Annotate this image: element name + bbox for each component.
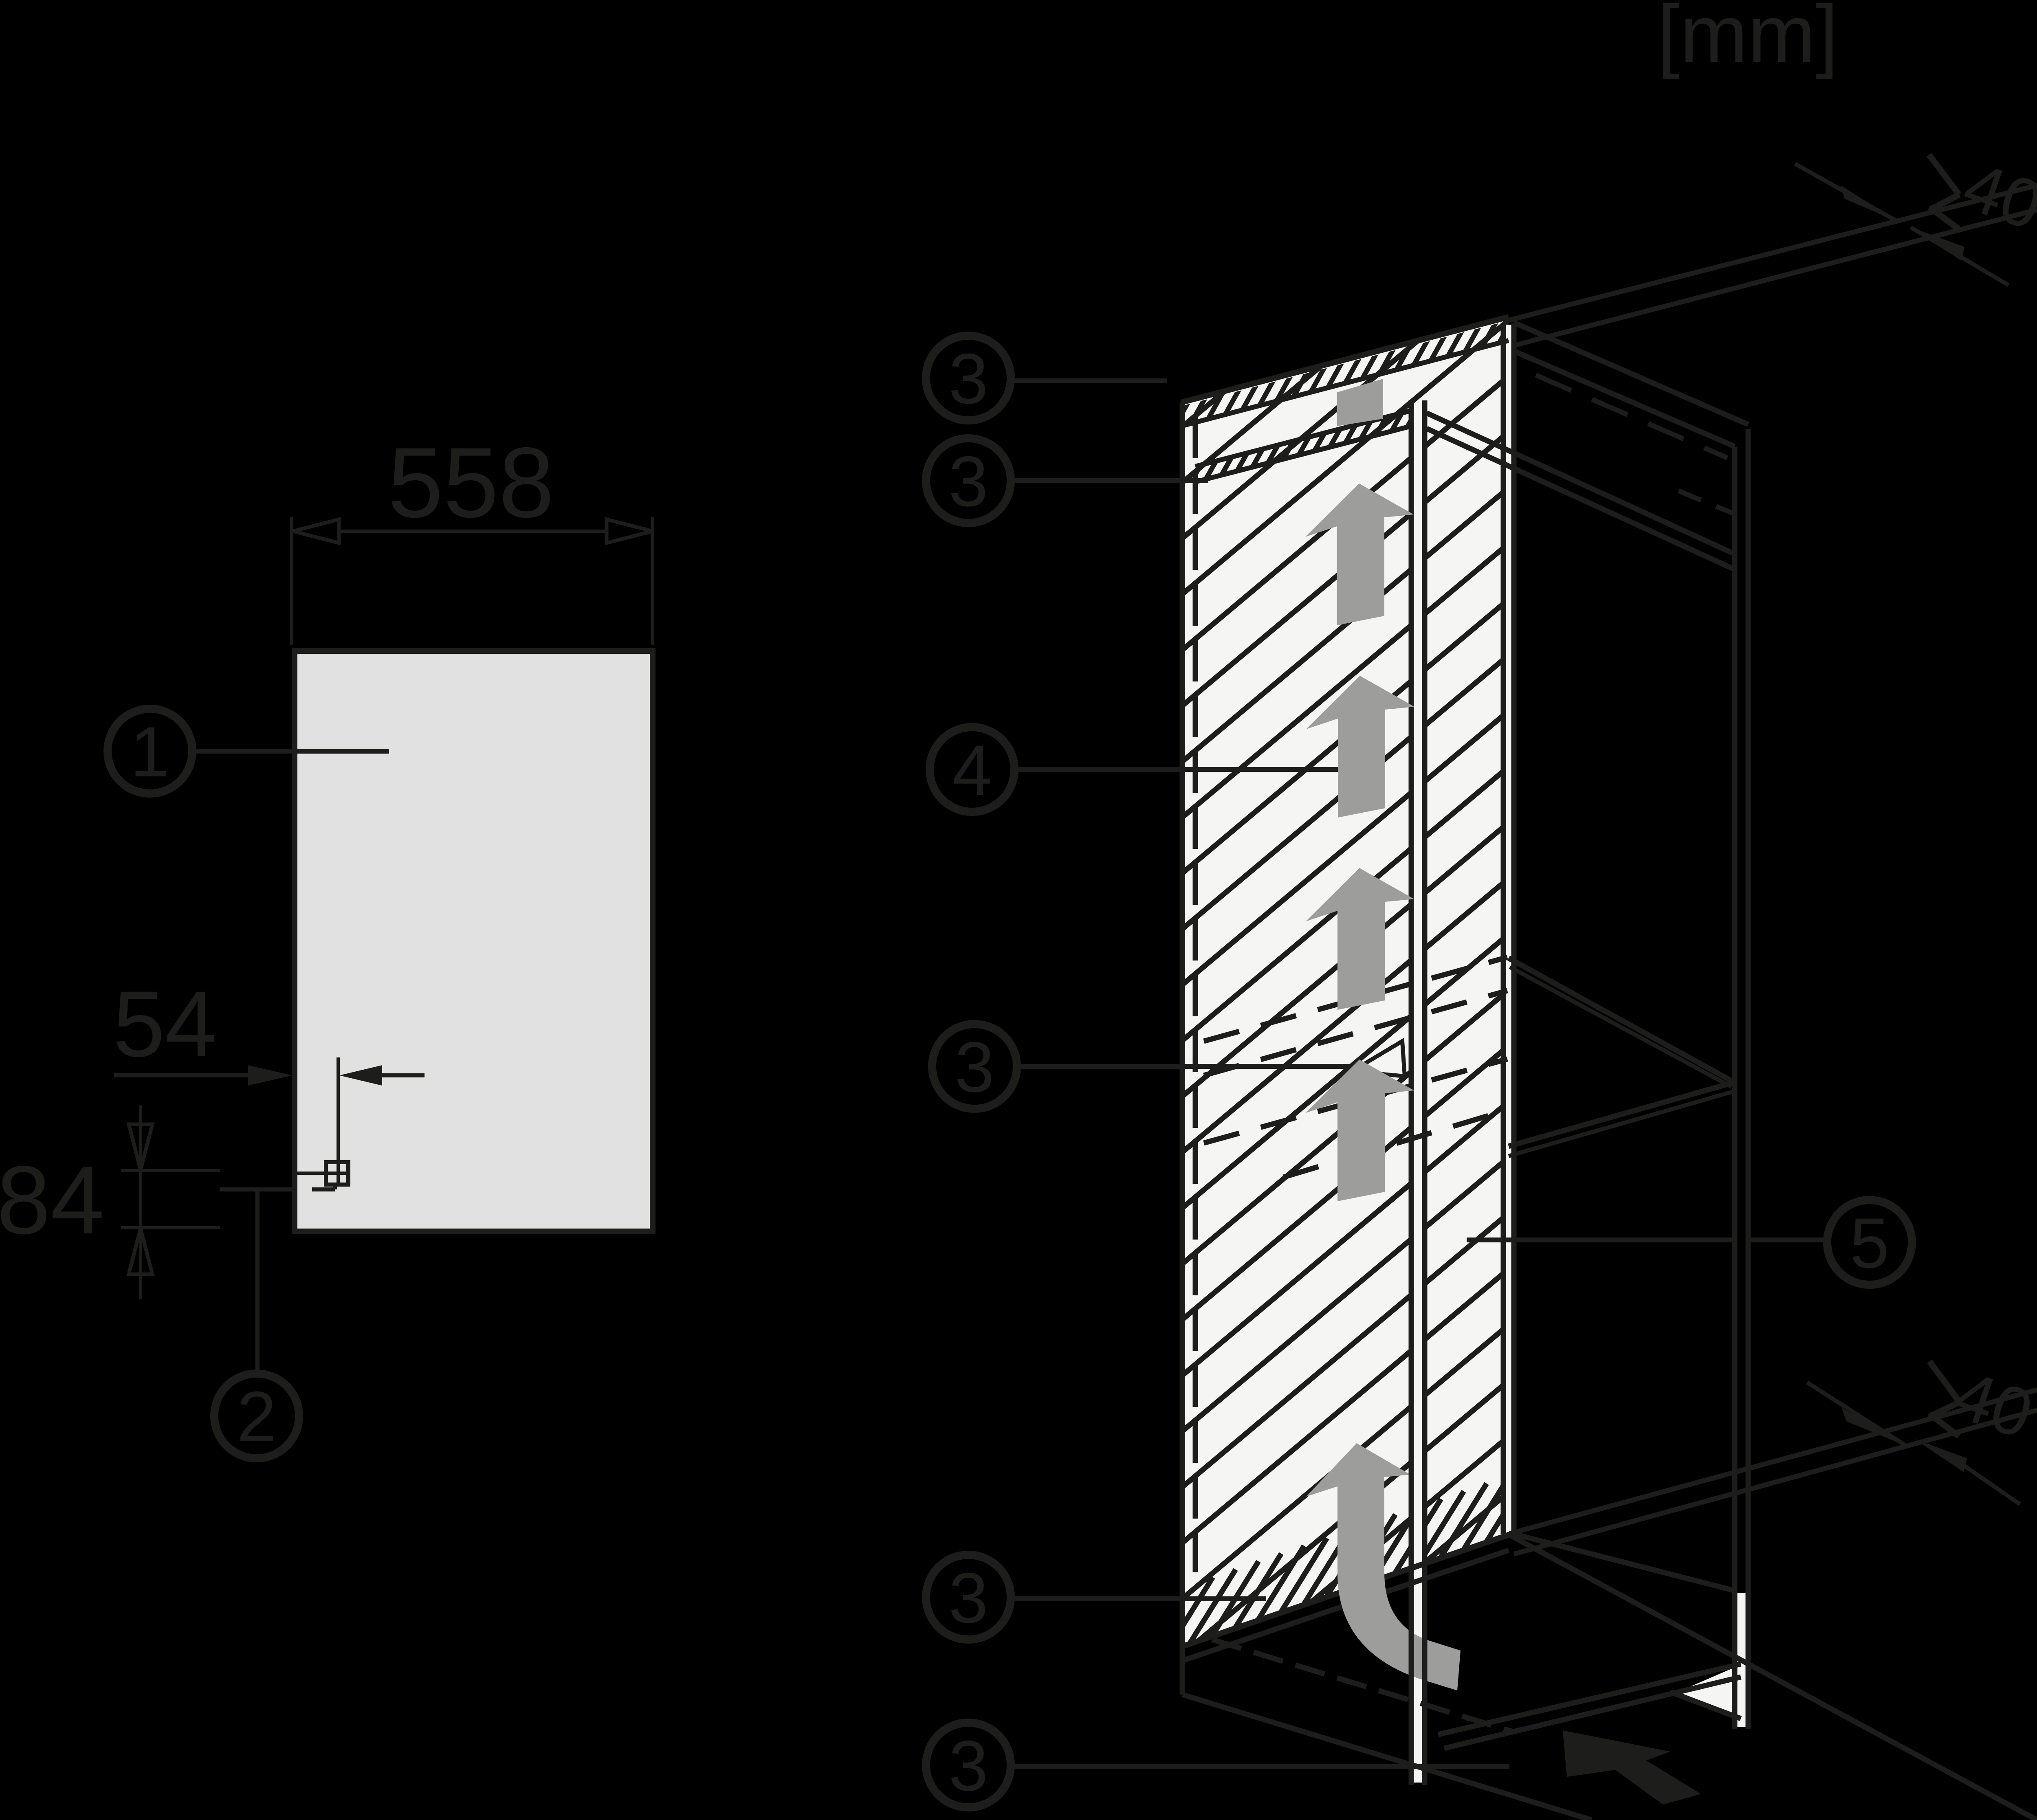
svg-text:1: 1 [130,712,169,792]
svg-text:4: 4 [952,731,992,810]
svg-text:5: 5 [1850,1204,1889,1283]
svg-text:3: 3 [948,339,988,419]
svg-text:3: 3 [948,1558,988,1638]
svg-text:558: 558 [388,426,554,538]
svg-text:3: 3 [948,1726,988,1806]
svg-text:3: 3 [948,442,988,521]
svg-text:[mm]: [mm] [1657,0,1838,79]
svg-text:84: 84 [0,1146,104,1254]
svg-text:2: 2 [237,1377,276,1457]
svg-text:3: 3 [955,1028,994,1107]
svg-text:54: 54 [113,972,217,1076]
